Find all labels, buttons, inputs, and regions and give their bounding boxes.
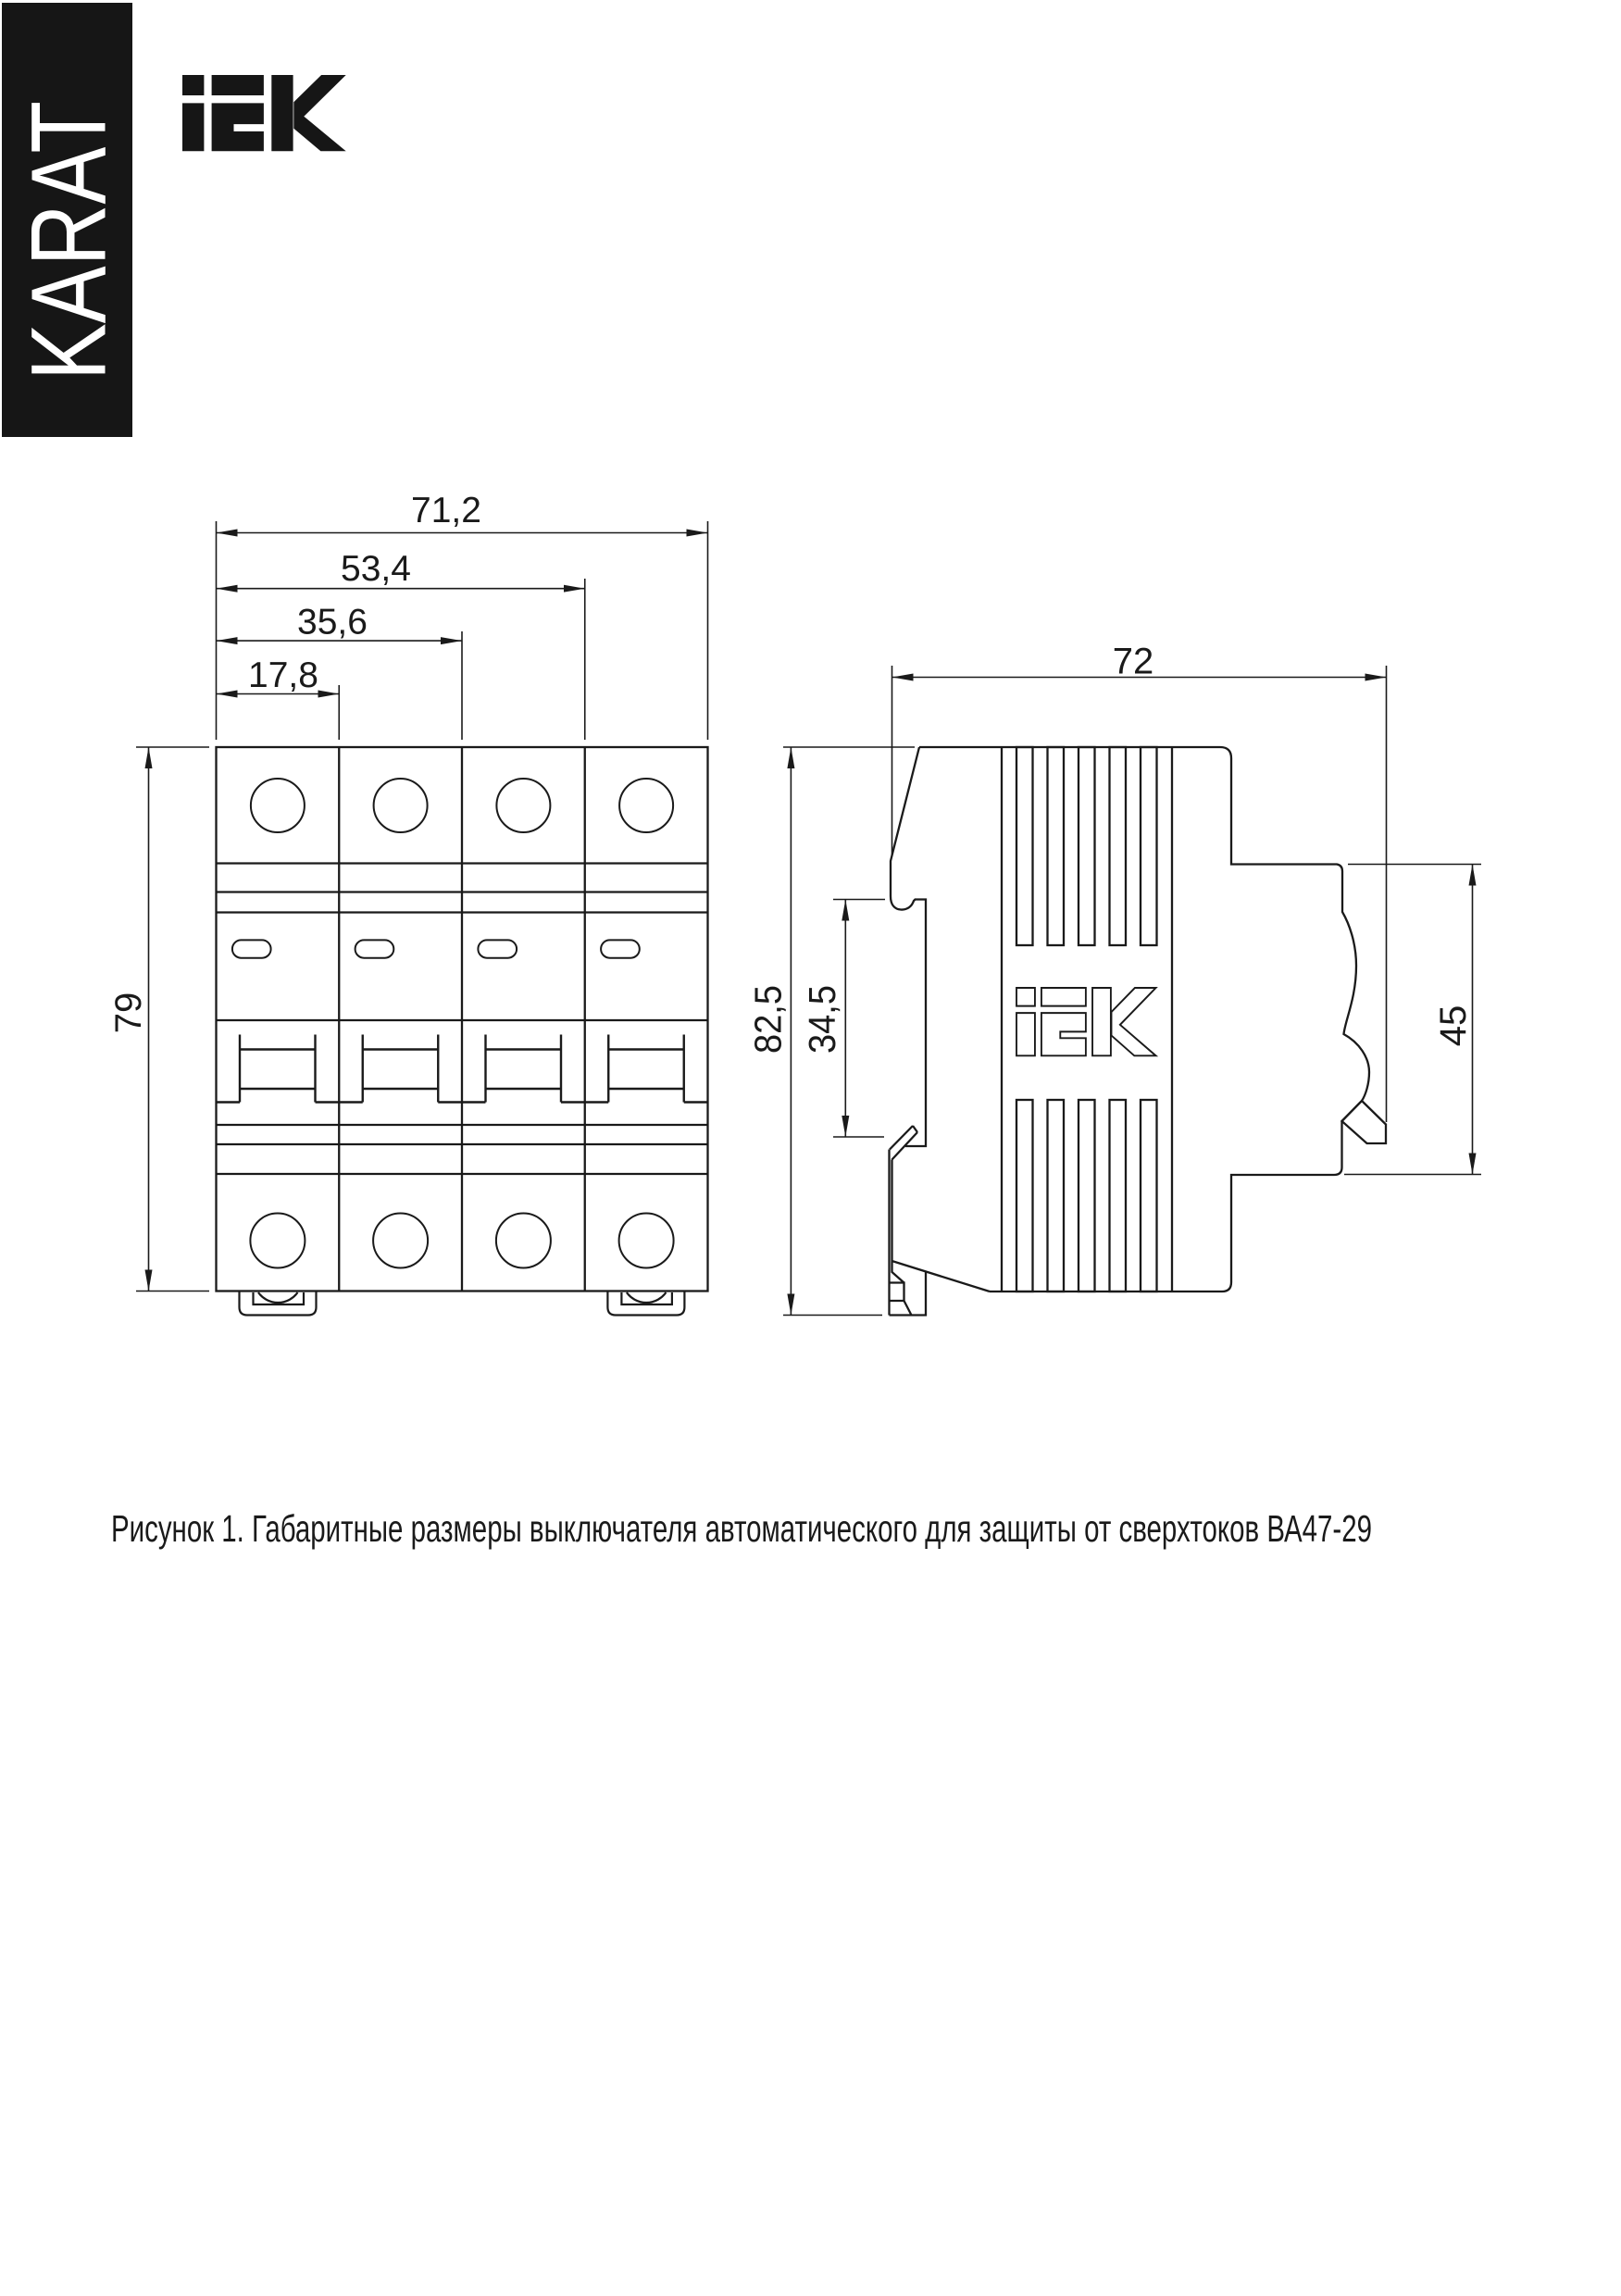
svg-text:72: 72 xyxy=(1113,642,1154,682)
svg-text:71,2: 71,2 xyxy=(411,491,481,530)
svg-text:45: 45 xyxy=(1433,1005,1474,1047)
svg-text:17,8: 17,8 xyxy=(248,655,318,695)
svg-text:35,6: 35,6 xyxy=(297,603,368,643)
svg-text:53,4: 53,4 xyxy=(341,549,411,589)
svg-text:KARAT: KARAT xyxy=(10,101,129,381)
svg-text:82,5: 82,5 xyxy=(747,985,790,1054)
svg-text:Рисунок 1. Габаритные размеры: Рисунок 1. Габаритные размеры выключател… xyxy=(111,1507,1372,1550)
svg-text:34,5: 34,5 xyxy=(801,985,843,1054)
svg-text:79: 79 xyxy=(108,992,149,1034)
